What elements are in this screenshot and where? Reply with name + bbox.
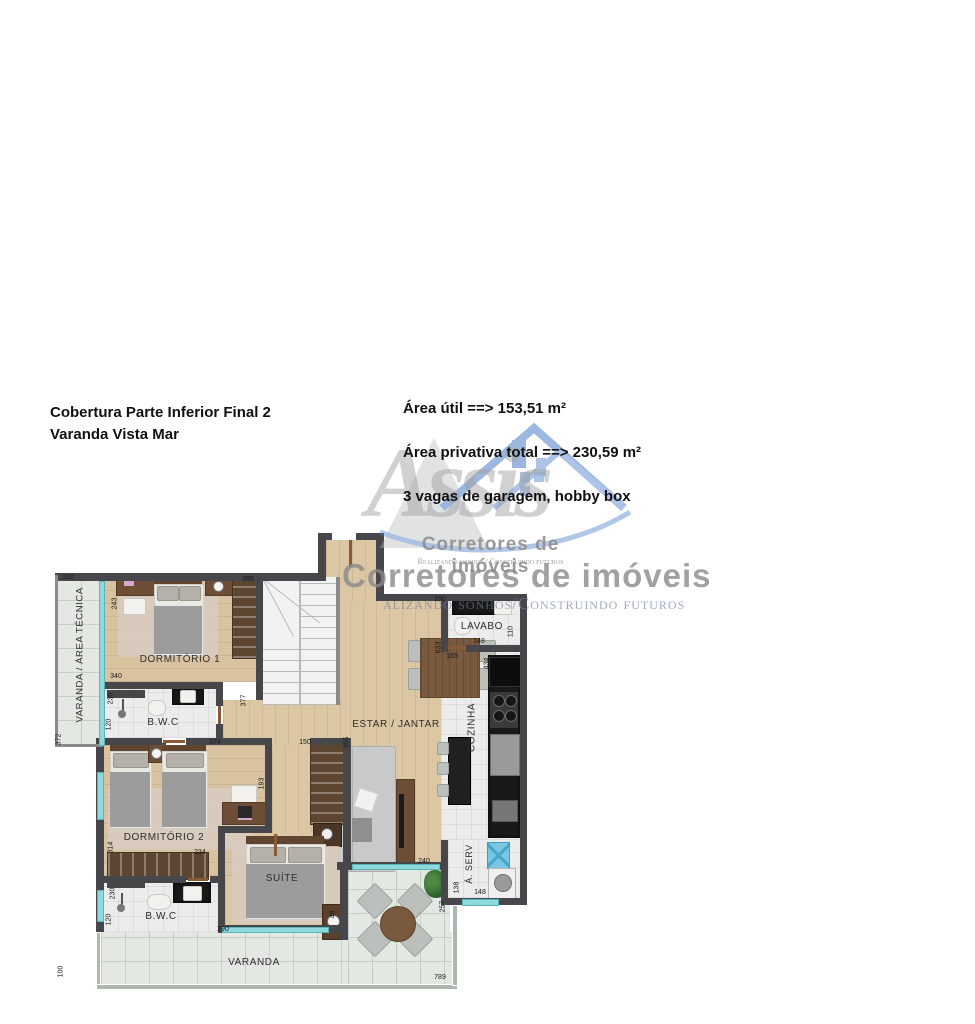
wall bbox=[466, 645, 520, 652]
lamp bbox=[213, 581, 224, 592]
room-label-dormitorio-2: DORMITÓRIO 2 bbox=[114, 832, 214, 843]
bwc2-window bbox=[97, 890, 104, 922]
lamp bbox=[151, 748, 162, 759]
plan-title: Cobertura Parte Inferior Final 2 Varanda… bbox=[50, 402, 271, 446]
dim-label: 377 bbox=[241, 693, 248, 709]
watermark-subtitle-small: Corretores de imóveis bbox=[388, 534, 593, 578]
wall bbox=[318, 533, 332, 540]
wall bbox=[96, 738, 162, 745]
armchair bbox=[123, 598, 146, 615]
lavabo-door bbox=[448, 646, 466, 649]
dim-label: 789 bbox=[432, 974, 448, 981]
dim-label: 193 bbox=[259, 776, 266, 792]
entry-door bbox=[349, 540, 352, 567]
wall bbox=[376, 533, 384, 601]
dim-label: 148 bbox=[472, 889, 488, 896]
dim-label: 100 bbox=[60, 574, 76, 581]
dim-label: 190 bbox=[432, 596, 448, 603]
room-label-varanda-tecnica: VARANDA / ÁREA TÉCNICA bbox=[75, 603, 86, 723]
room-label-varanda: VARANDA bbox=[204, 957, 304, 968]
suite-door bbox=[274, 834, 277, 856]
wall bbox=[265, 743, 272, 833]
wall bbox=[216, 688, 223, 706]
shower-head bbox=[118, 710, 126, 718]
room-label-dormitorio-1: DORMITÓRIO 1 bbox=[130, 654, 230, 665]
plan-info: Área útil ==> 153,51 m² Área privativa t… bbox=[403, 400, 641, 532]
sofa-pillow2 bbox=[352, 818, 372, 842]
burner-2 bbox=[505, 695, 517, 707]
room-label-estar-jantar: ESTAR / JANTAR bbox=[336, 719, 456, 730]
dim-label: 110 bbox=[508, 624, 515, 640]
bed2b-pillow bbox=[166, 753, 204, 768]
dim-label: 148 bbox=[471, 638, 487, 645]
room-label-bwc-1: B.W.C bbox=[133, 717, 193, 728]
oven bbox=[490, 734, 520, 776]
dim-label: 305 bbox=[344, 735, 351, 751]
laundry-tank bbox=[487, 842, 510, 869]
dorm2-door bbox=[163, 740, 185, 743]
wall bbox=[103, 682, 223, 689]
dim-label: 374 bbox=[207, 739, 223, 746]
burner-3 bbox=[493, 710, 505, 722]
dim-label: 165 bbox=[444, 653, 460, 660]
dim-label: 150 bbox=[297, 739, 313, 746]
wall bbox=[210, 876, 222, 883]
dim-label: 434 bbox=[484, 656, 491, 672]
sofa-cushion-line bbox=[352, 748, 353, 868]
toilet bbox=[147, 894, 171, 910]
wall bbox=[256, 573, 263, 700]
tecnica-window bbox=[99, 581, 105, 746]
bed3-pillow-left bbox=[250, 847, 286, 863]
room-label-cozinha: COZINHA bbox=[467, 693, 478, 763]
tecnica-left-rail bbox=[55, 575, 58, 747]
stairs-left-flight bbox=[263, 640, 300, 705]
dim-label: 372 bbox=[56, 732, 63, 748]
bed2b-blanket bbox=[162, 772, 206, 827]
wall bbox=[318, 533, 326, 581]
wall bbox=[96, 876, 186, 883]
room-label-aserv: Á. SERV bbox=[464, 839, 474, 889]
wall bbox=[520, 594, 527, 905]
varanda-left-rail bbox=[96, 932, 101, 990]
dim-label: 230 bbox=[108, 691, 115, 707]
burner-4 bbox=[505, 710, 517, 722]
patio-table bbox=[380, 906, 416, 942]
dim-label: 314 bbox=[108, 840, 115, 856]
dim-label: 257 bbox=[440, 899, 447, 915]
wall bbox=[218, 826, 272, 833]
tv bbox=[399, 794, 404, 848]
wall bbox=[55, 573, 326, 581]
dim-label: 230 bbox=[110, 886, 117, 902]
lavabo-sink bbox=[494, 600, 512, 615]
washer-door bbox=[494, 874, 512, 892]
wall bbox=[376, 594, 527, 601]
bwc1-sink bbox=[180, 690, 196, 703]
shower-head bbox=[117, 904, 125, 912]
dim-label: 240 bbox=[416, 858, 432, 865]
varanda-bottom-rail bbox=[96, 984, 458, 990]
stool-1 bbox=[437, 742, 449, 755]
fridge bbox=[489, 657, 521, 687]
dim-label: 234 bbox=[192, 849, 208, 856]
room-label-lavabo: LAVABO bbox=[452, 621, 512, 632]
bed2a-pillow bbox=[113, 753, 149, 768]
dim-label: 243 bbox=[112, 596, 119, 612]
page: Cobertura Parte Inferior Final 2 Varanda… bbox=[0, 0, 975, 1024]
info-area-privativa: Área privativa total ==> 230,59 m² bbox=[403, 444, 641, 461]
suite-wardrobe bbox=[310, 740, 345, 825]
burner-1 bbox=[493, 695, 505, 707]
dim-label: 340 bbox=[108, 673, 124, 680]
stool-2 bbox=[437, 762, 449, 775]
info-area-util: Área útil ==> 153,51 m² bbox=[403, 400, 641, 417]
bed1-blanket bbox=[154, 606, 202, 654]
stairs-divider bbox=[299, 577, 301, 705]
watermark-tagline-small: Realizando sonhos / Construindo futuros bbox=[383, 557, 598, 566]
dim-label: 289 bbox=[240, 576, 256, 583]
aserv-window bbox=[462, 899, 499, 906]
info-vagas: 3 vagas de garagem, hobby box bbox=[403, 488, 641, 505]
bwc2-sink bbox=[183, 886, 202, 901]
dim-label: 120 bbox=[106, 912, 113, 928]
bwc1-door bbox=[218, 706, 221, 724]
dim-label: 290 bbox=[215, 926, 231, 933]
laptop bbox=[238, 806, 252, 820]
wall bbox=[343, 738, 351, 868]
bed1-pillow-right bbox=[179, 586, 201, 601]
stairs-edge bbox=[336, 577, 340, 705]
dim-label: 100 bbox=[58, 964, 65, 980]
bed3-headboard bbox=[246, 836, 324, 844]
dim-label: 48 bbox=[330, 907, 337, 923]
wall bbox=[441, 840, 448, 905]
bed3-pillow-right bbox=[288, 847, 322, 863]
dim-label: 120 bbox=[106, 717, 113, 733]
stairs-right-flight bbox=[300, 577, 337, 705]
bed1-pillow-left bbox=[157, 586, 179, 601]
title-line-2: Varanda Vista Mar bbox=[50, 424, 271, 446]
bwc2-door bbox=[188, 878, 208, 881]
dorm2-window bbox=[97, 772, 104, 820]
suite-varanda-door bbox=[222, 927, 329, 933]
varanda-right-rail bbox=[452, 905, 458, 986]
dim-label: 138 bbox=[454, 880, 461, 896]
watermark-subtitle-large: Corretores de imóveis bbox=[342, 557, 711, 595]
stool-3 bbox=[437, 784, 449, 797]
toilet bbox=[148, 700, 166, 716]
dim-label: 633 bbox=[436, 640, 443, 656]
title-line-1: Cobertura Parte Inferior Final 2 bbox=[50, 402, 271, 424]
kitchen-sink bbox=[492, 800, 518, 822]
bed2a-blanket bbox=[110, 772, 150, 827]
room-label-suite: SUÍTE bbox=[252, 873, 312, 884]
room-label-bwc-2: B.W.C bbox=[131, 911, 191, 922]
